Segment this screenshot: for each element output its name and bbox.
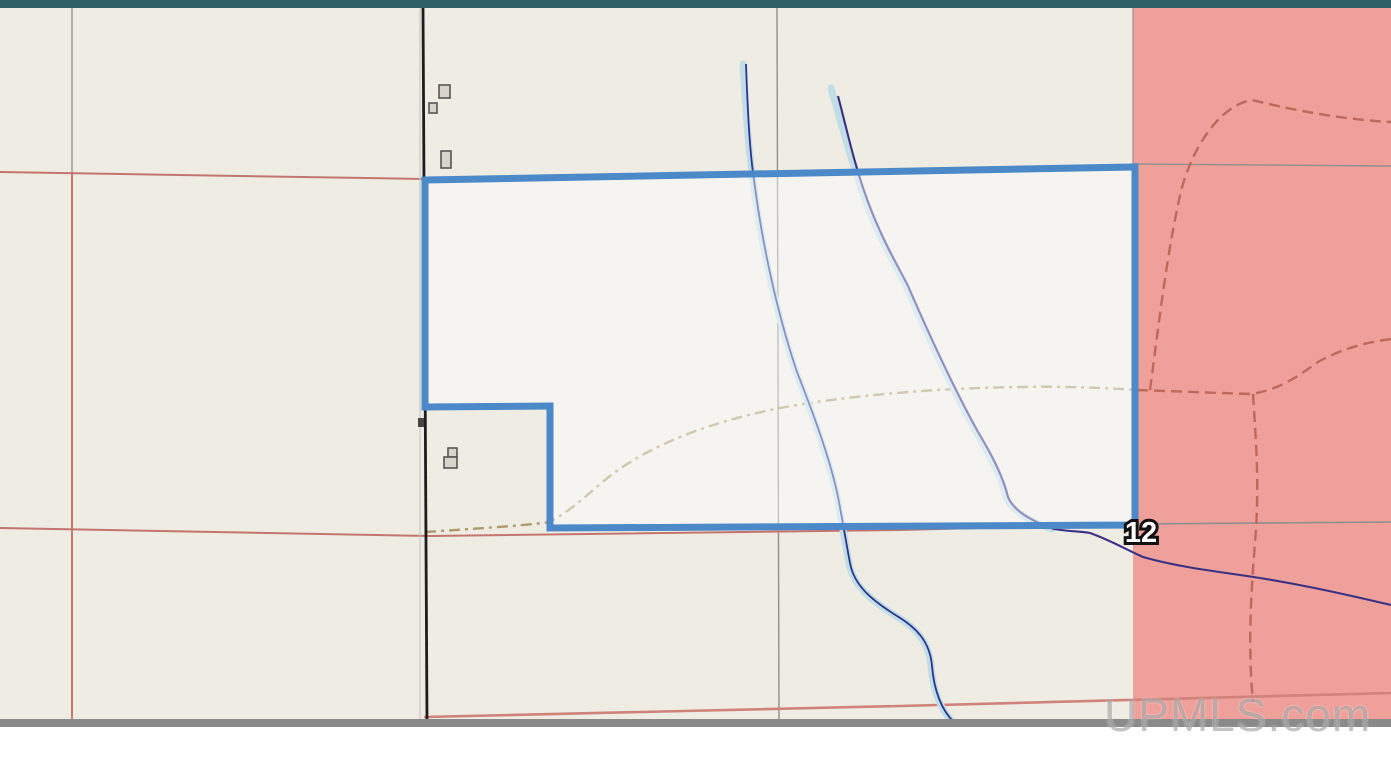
section-number-label: 12 [1125, 517, 1157, 549]
map-bottom-divider [0, 719, 1391, 727]
app-window: 12 UPMLS.com Search QuickPrint Refresh C… [0, 0, 1391, 764]
map-canvas[interactable]: 12 [0, 8, 1391, 722]
bottom-toolbar: Search QuickPrint Refresh Clear Show/Hid… [0, 727, 1391, 764]
map-svg: 12 [0, 8, 1391, 722]
top-title-bar [0, 0, 1391, 8]
highlight-zone[interactable] [1133, 8, 1391, 722]
